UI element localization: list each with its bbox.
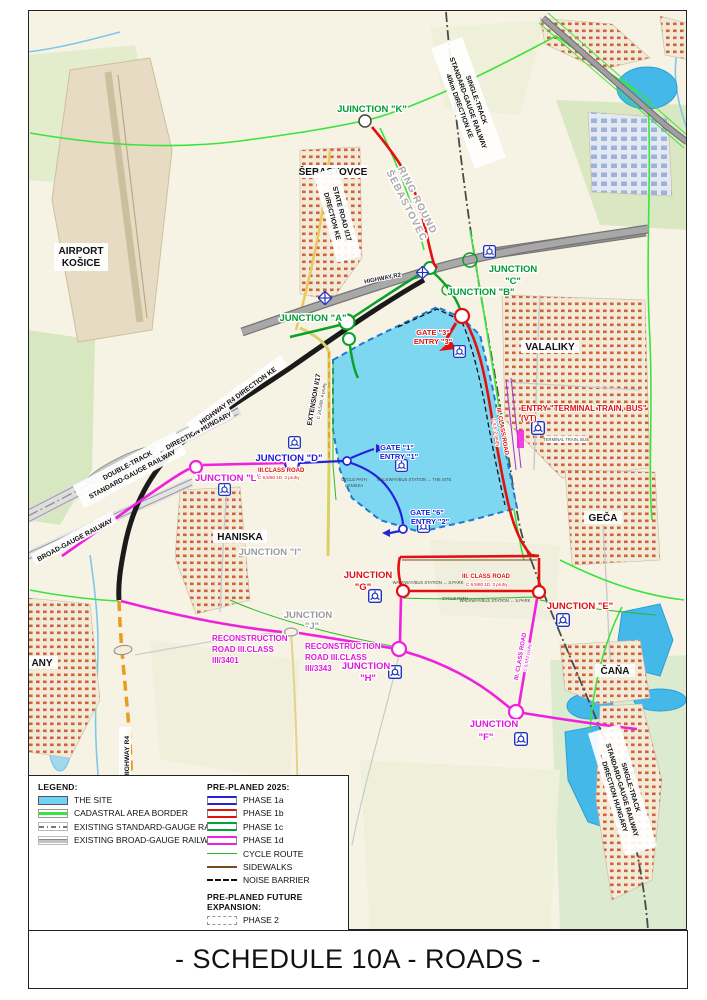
label-valaliky: VALALIKY: [525, 342, 575, 353]
label-entry-terminal-2: (VT): [521, 414, 537, 423]
junction-k-circle: [359, 115, 371, 127]
legend-label: THE SITE: [74, 795, 112, 805]
label-junction-f-2: "F": [479, 732, 494, 743]
label-junction-b: JUNCTION "B": [447, 287, 514, 298]
cadastral-swatch: [38, 809, 68, 818]
phase-1a-swatch: [207, 796, 237, 805]
label-cana: ČAŇA: [601, 664, 630, 677]
legend-item-broad-rail: EXISTING BROAD-GAUGE RAILWAY: [38, 835, 200, 845]
mini-roundabout-1: [343, 457, 351, 465]
junction-d-icon: [289, 437, 301, 449]
legend-item-phase-1d: PHASE 1d: [207, 835, 345, 845]
label-junction-g-2: "G": [355, 582, 371, 593]
legend-label: PHASE 2: [243, 915, 279, 925]
legend-preplaned-heading: PRE-PLANED 2025:: [207, 782, 345, 792]
phase-1c-swatch: [207, 822, 237, 831]
legend-item-phase-1b: PHASE 1b: [207, 808, 345, 818]
junction-g-roundabout: [397, 585, 409, 597]
sidewalks-swatch: [207, 862, 237, 871]
legend-label: SIDEWALKS: [243, 862, 292, 872]
junction-l-icon: [219, 484, 231, 496]
legend-label: PHASE 1d: [243, 835, 284, 845]
airport-area: [52, 58, 172, 342]
terminal-icon: [532, 422, 545, 435]
legend-column-1: LEGEND: THE SITE CADASTRAL AREA BORDER E…: [38, 782, 200, 849]
label-geca: GEČA: [589, 511, 618, 524]
label-cycle-path-haniska: CYCLE PATH: [341, 477, 367, 482]
label-junction-g: JUNCTION: [344, 570, 393, 581]
label-junction-h: JUNCTION: [342, 661, 391, 672]
label-walkway-spark-2: WALKWAY/BUS STATION ↔ S.PARK: [460, 598, 531, 603]
label-junction-f: JUNCTION: [470, 719, 519, 730]
legend-label: EXISTING BROAD-GAUGE RAILWAY: [74, 835, 219, 845]
junction-f-icon: [515, 733, 528, 746]
legend-item-noise-barrier: NOISE BARRIER: [207, 875, 345, 885]
label-junction-l: JUNCTION "L": [195, 473, 261, 484]
label-reconstruction1-1: RECONSTRUCTION: [212, 634, 288, 643]
noise-barrier-swatch: [207, 876, 237, 885]
legend-item-cadastral: CADASTRAL AREA BORDER: [38, 808, 200, 818]
phase-2-swatch: [207, 916, 237, 925]
label-haniska: HANISKA: [217, 532, 263, 543]
page-title: - SCHEDULE 10A - ROADS -: [175, 944, 541, 975]
gate-3-icon: [454, 346, 466, 358]
legend-column-2: PRE-PLANED 2025: PHASE 1a PHASE 1b PHASE…: [207, 782, 345, 929]
junction-c-icon: [484, 246, 496, 258]
label-cycle-path: CYCLE PATH: [442, 596, 468, 601]
legend-item-phase-2: PHASE 2: [207, 915, 345, 925]
terminal-platform: [517, 430, 524, 448]
site-swatch: [38, 796, 68, 805]
legend-item-cycle-route: CYCLE ROUTE: [207, 849, 345, 859]
junction-h-icon: [389, 666, 402, 679]
legend-item-standard-rail: EXISTING STANDARD-GAUGE RAILWAY: [38, 822, 200, 832]
gate-1-icon: [396, 460, 408, 472]
legend-item-site: THE SITE: [38, 795, 200, 805]
label-cycle-path-haniska-2: HANISKA: [345, 483, 364, 488]
legend-future-heading: PRE-PLANED FUTURE EXPANSION:: [207, 892, 345, 912]
label-iii-class-g: III. CLASS ROAD: [462, 574, 511, 580]
label-junction-i: JUNCTION "I": [239, 547, 302, 558]
label-junction-d: JUNCTION "D": [255, 453, 322, 464]
label-gate-3-2: ENTRY "3": [414, 337, 453, 346]
label-iii-class-d-spec: C 9,5/80 1D, 3 pruhy: [258, 475, 300, 480]
junction-e-roundabout: [533, 586, 545, 598]
label-airport-2: KOŠICE: [62, 256, 101, 269]
label-gate-1: GATE "1": [380, 443, 414, 452]
label-junction-c: JUNCTION: [489, 264, 538, 275]
label-junction-a: JUNCTION "A": [279, 313, 346, 324]
legend-item-phase-1a: PHASE 1a: [207, 795, 345, 805]
legend-label: NOISE BARRIER: [243, 875, 310, 885]
legend-heading: LEGEND:: [38, 782, 200, 792]
mini-roundabout-2: [399, 525, 407, 533]
label-walkway-site: WALKWAY/BUS STATION ↔ THE SITE: [377, 477, 452, 482]
label-junction-j-2: "J": [305, 621, 319, 632]
cycle-route-swatch: [207, 849, 237, 858]
legend-label: PHASE 1a: [243, 795, 284, 805]
junction-h-roundabout: [392, 642, 406, 656]
legend-label: CYCLE ROUTE: [243, 849, 303, 859]
junction-e-icon: [557, 614, 570, 627]
junction-a-roundabout-2: [343, 333, 355, 345]
legend-label: PHASE 1b: [243, 808, 284, 818]
gate-3-roundabout: [455, 309, 469, 323]
label-junction-e: JUNCTION "E": [547, 601, 614, 612]
label-reconstruction1-2: ROAD III.CLASS: [212, 645, 274, 654]
svg-text:HIGHWAY R4: HIGHWAY R4: [124, 736, 131, 779]
title-bar: - SCHEDULE 10A - ROADS -: [28, 930, 688, 989]
standard-rail-swatch: [38, 822, 68, 831]
label-iii-class-g-spec: C 9,5/80 1D, 3 pruhy: [466, 582, 508, 587]
phase-1d-swatch: [207, 836, 237, 845]
broad-rail-swatch: [38, 836, 68, 845]
schedule-10a-page: ŠEBASTOVCE AIRPORT KOŠICE VALALIKY HANIS…: [0, 0, 707, 1000]
legend: LEGEND: THE SITE CADASTRAL AREA BORDER E…: [28, 775, 349, 931]
label-reconstruction2-2: ROAD III.CLASS: [305, 653, 367, 662]
label-walkway-spark-1: WALKWAY/BUS STATION ↔ S.PARK: [393, 580, 464, 585]
label-terminal-small: TERMINAL TRAIN, BUS: [543, 437, 589, 442]
label-entry-terminal: ENTRY "TERMINAL TRAIN, BUS": [521, 404, 647, 413]
label-junction-j: JUNCTION: [284, 610, 333, 621]
legend-label: PHASE 1c: [243, 822, 283, 832]
label-reconstruction2-1: RECONSTRUCTION: [305, 642, 381, 651]
label-junction-c-2: "C": [505, 276, 521, 287]
legend-label: CADASTRAL AREA BORDER: [74, 808, 188, 818]
legend-item-sidewalks: SIDEWALKS: [207, 862, 345, 872]
label-gate-6: GATE "6": [410, 508, 444, 517]
label-iii-class-d: III.CLASS ROAD: [258, 468, 305, 474]
label-gate-3: GATE "3": [416, 328, 450, 337]
legend-item-phase-1c: PHASE 1c: [207, 822, 345, 832]
label-gate-1-2: ENTRY "1": [380, 452, 419, 461]
phase-1b-swatch: [207, 809, 237, 818]
label-reconstruction1-3: III/3401: [212, 656, 239, 665]
label-junction-k: JUINCTION "K": [337, 104, 407, 115]
label-gate-6-2: ENTRY "2": [411, 517, 450, 526]
label-airport-1: AIRPORT: [59, 246, 104, 257]
junction-l-roundabout: [190, 461, 202, 473]
label-junction-h-2: "H": [360, 673, 376, 684]
label-reconstruction2-3: III/3343: [305, 664, 332, 673]
label-any: ANY: [31, 658, 52, 669]
junction-f-roundabout: [509, 705, 523, 719]
